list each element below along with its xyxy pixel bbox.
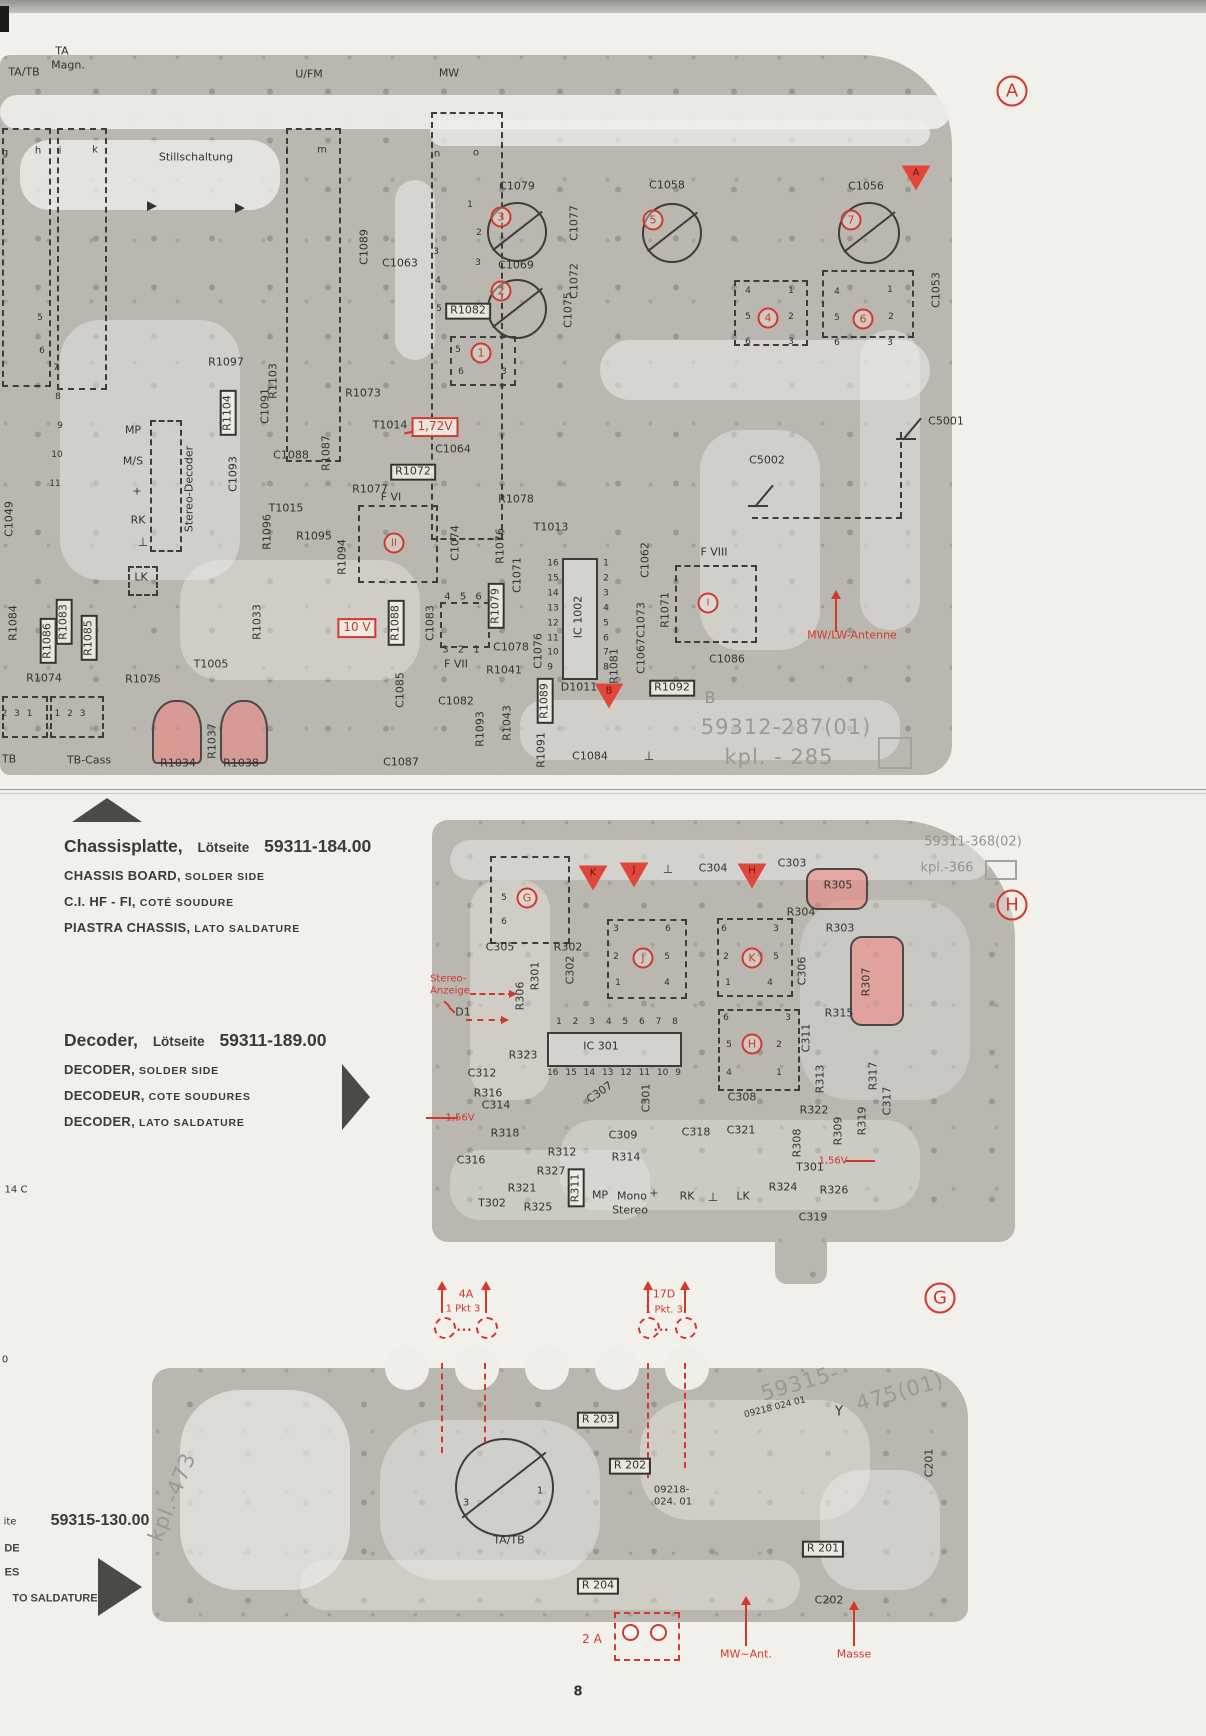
board-notch [525,1346,569,1390]
trace-decoration [430,120,930,146]
filter-outline-4 [734,280,808,346]
part-number: 59315-130.00 [51,1512,150,1530]
red-measure-line [845,1160,875,1162]
trimmer-circle [487,279,547,339]
filter-outline-f6 [358,505,438,583]
board-notch [665,1346,709,1390]
adjust-point: 4A [459,1289,474,1302]
divider-line [0,789,1206,790]
trimmer-adjust-icon [476,1317,498,1339]
component-label: ES [5,1567,20,1580]
caption-title: Decoder, [64,1030,138,1050]
connector-outline-u-fm [286,128,341,462]
trimmer-circle [487,202,547,262]
red-dashed-line [647,1363,649,1478]
caption-title: Chassisplatte, [64,836,183,856]
red-arrow-adjust [485,1285,487,1313]
trimmer-circle [642,203,702,263]
fuse-icon [622,1624,639,1641]
trimmer-icon [896,438,916,440]
caption-line: DECODER, LATO SALDATURE [64,1114,484,1129]
chassis-caption-heading: Chassisplatte, Lötseite 59311-184.00 [64,836,484,857]
component-label: 14 C [5,1184,28,1196]
decoder-caption-block: Decoder, Lötseite 59311-189.00 DECODER, … [64,1030,484,1129]
decoder-caption-heading: Decoder, Lötseite 59311-189.00 [64,1030,484,1051]
caption-line: DECODER, SOLDER SIDE [64,1062,484,1077]
fuse-icon [650,1624,667,1641]
caption-side: Lötseite [198,840,250,855]
highlight-r307 [850,936,904,1026]
scan-edge-chip [0,6,9,32]
right-arrow-icon [98,1558,142,1616]
pin-box-outline [2,696,48,738]
page-number: 8 [573,1686,582,1701]
red-dashed-line [441,1363,443,1453]
trace-decoration [860,330,920,630]
highlight-r305 [806,868,868,910]
caption-side: Lötseite [153,1034,205,1049]
caption-line: C.I. HF - FI, COTÉ SOUDURE [64,894,484,909]
filter-outline-6 [822,270,914,338]
trimmer-icon [748,505,768,507]
pin-grid-outline [440,602,490,648]
red-dashed-line [684,1363,686,1468]
red-arrow-masse [853,1605,855,1646]
chassis-caption-block: Chassisplatte, Lötseite 59311-184.00 CHA… [64,836,484,935]
coil-outline-h [718,1009,800,1091]
connector-outline-ta-magn [57,128,107,390]
board-notch [595,1346,639,1390]
component-label: TO SALDATURE [12,1593,97,1606]
component-label: DE [4,1543,19,1556]
section-letter-a: A [997,76,1028,107]
trace-decoration [395,180,435,360]
component-label: ••• [456,1326,472,1336]
caption-line: DECODEUR, COTE SOUDURES [64,1088,484,1103]
filter-outline-1 [450,336,516,386]
section-letter-g: G [925,1283,956,1314]
connector-outline-mp [150,420,182,552]
trimmer-circle [838,202,900,264]
coil-outline-j [607,919,687,999]
up-arrow-icon [72,798,142,822]
pin-box-outline [50,696,104,738]
trimmer-adjust-icon [434,1317,456,1339]
dashed-route [752,517,902,519]
filter-outline-f8 [675,565,757,643]
ground-callout: Masse [837,1649,871,1662]
board-notch [385,1346,429,1390]
antenna-callout: MW~Ant. [720,1649,772,1662]
coil-outline-g [490,856,570,944]
component-label: 1 Pkt 3 [446,1303,481,1315]
highlight-r1034 [152,700,202,764]
dashed-route [900,432,902,518]
red-arrow-mw-ant [745,1600,747,1646]
ic-301-outline [547,1032,682,1067]
stamp-box [878,737,912,769]
transistor-circle [455,1438,554,1537]
red-dashed-arrow [470,993,514,995]
scan-edge-top [0,0,1206,13]
component-label: 1 Pkt. 3 [645,1304,683,1316]
caption-line: PIASTRA CHASSIS, LATO SALDATURE [64,920,484,935]
red-dashed-arrow [466,1019,506,1021]
page: Chassisplatte, Lötseite 59311-184.00 CHA… [0,0,1206,1736]
adjust-point: 17D [653,1289,675,1302]
caption-part-number: 59311-189.00 [219,1030,326,1050]
board-notch [455,1346,499,1390]
divider-line [0,793,1206,794]
caption-part-number: 59311-184.00 [264,836,371,856]
ic-1002-outline [562,558,598,680]
component-label: 0 [2,1354,8,1366]
red-arrow-adjust [647,1285,649,1313]
red-arrow-adjust [441,1285,443,1313]
component-label: ite [4,1516,17,1528]
trimmer-adjust-icon [675,1317,697,1339]
highlight-r1038 [220,700,268,764]
trace-decoration [820,1470,940,1590]
red-arrow-mwlw [835,594,837,632]
red-dashed-line [484,1363,486,1443]
trace-decoration [300,1560,800,1610]
fuse-rating: 2 A [582,1633,602,1647]
trace-decoration [520,700,900,760]
red-arrow-adjust [684,1285,686,1313]
connector-outline-lk [128,566,158,596]
coil-outline-k [717,918,793,997]
caption-line: CHASSIS BOARD, SOLDER SIDE [64,868,484,883]
trimmer-adjust-icon [638,1317,660,1339]
stamp-box [985,860,1017,880]
board-h-tab [775,1238,827,1284]
connector-outline-ta-tb [2,128,51,387]
trace-decoration [450,1150,650,1220]
